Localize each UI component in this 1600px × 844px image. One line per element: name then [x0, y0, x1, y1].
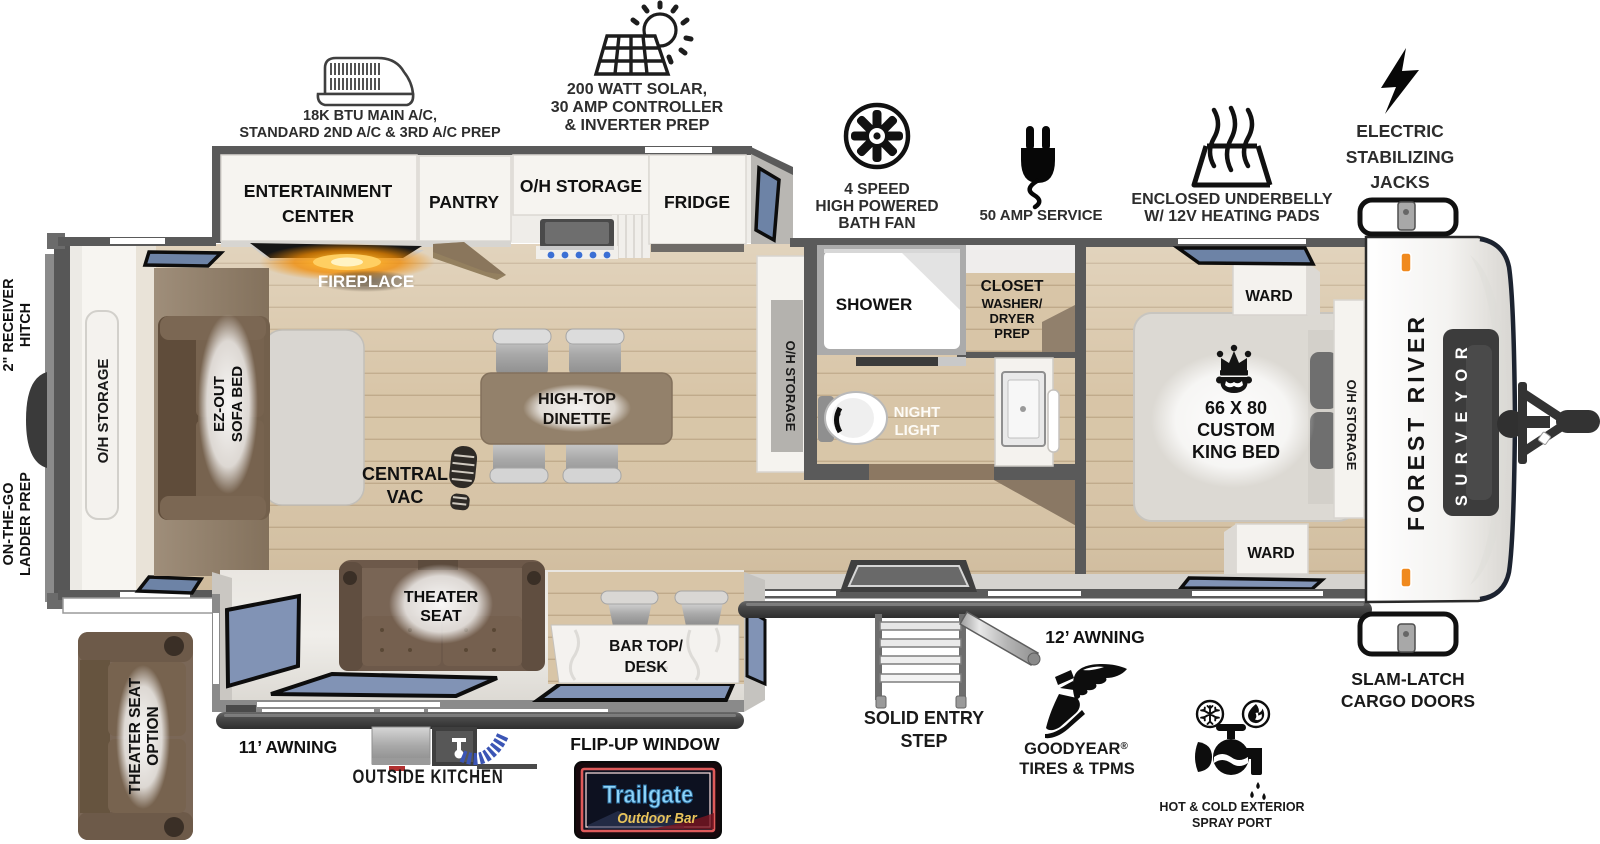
svg-text:WARD: WARD	[1245, 288, 1292, 305]
svg-text:O/H STORAGE: O/H STORAGE	[1344, 380, 1359, 471]
svg-text:DINETTE: DINETTE	[543, 411, 612, 428]
svg-text:12’ AWNING: 12’ AWNING	[1045, 627, 1145, 647]
svg-text:HITCH: HITCH	[18, 303, 34, 347]
svg-text:ENCLOSED UNDERBELLY: ENCLOSED UNDERBELLY	[1131, 191, 1333, 208]
svg-text:DESK: DESK	[624, 659, 668, 676]
svg-text:66 X 80: 66 X 80	[1205, 398, 1267, 418]
svg-text:JACKS: JACKS	[1370, 172, 1429, 192]
svg-text:SURVEYOR: SURVEYOR	[1453, 338, 1471, 506]
svg-text:ELECTRIC: ELECTRIC	[1356, 121, 1444, 141]
svg-text:THEATER: THEATER	[404, 589, 479, 606]
svg-text:SHOWER: SHOWER	[836, 295, 913, 314]
svg-text:4 SPEED: 4 SPEED	[844, 181, 909, 198]
svg-text:11’ AWNING: 11’ AWNING	[239, 737, 338, 757]
svg-text:SOFA BED: SOFA BED	[229, 366, 246, 442]
svg-text:WASHER/: WASHER/	[982, 296, 1043, 311]
svg-text:O/H STORAGE: O/H STORAGE	[95, 359, 112, 464]
svg-text:STABILIZING: STABILIZING	[1346, 147, 1455, 167]
svg-text:50 AMP SERVICE: 50 AMP SERVICE	[979, 207, 1102, 224]
svg-text:O/H STORAGE: O/H STORAGE	[783, 341, 798, 432]
svg-text:ON-THE-GO: ON-THE-GO	[1, 483, 17, 566]
svg-text:Outdoor Bar: Outdoor Bar	[617, 810, 698, 827]
svg-text:CARGO DOORS: CARGO DOORS	[1341, 691, 1475, 711]
svg-text:FRIDGE: FRIDGE	[664, 192, 730, 212]
svg-text:KING BED: KING BED	[1192, 442, 1280, 462]
svg-text:CUSTOM: CUSTOM	[1197, 420, 1275, 440]
svg-text:SOLID ENTRY: SOLID ENTRY	[864, 708, 984, 728]
svg-text:SEAT: SEAT	[420, 608, 462, 625]
svg-text:EZ-OUT: EZ-OUT	[211, 376, 228, 432]
svg-text:LADDER PREP: LADDER PREP	[18, 472, 34, 576]
svg-text:FLIP-UP WINDOW: FLIP-UP WINDOW	[570, 734, 720, 754]
svg-text:FIREPLACE: FIREPLACE	[318, 272, 414, 291]
svg-text:STANDARD 2ND A/C & 3RD A/C PRE: STANDARD 2ND A/C & 3RD A/C PREP	[239, 125, 501, 141]
svg-text:VAC: VAC	[387, 487, 424, 507]
svg-text:SLAM-LATCH: SLAM-LATCH	[1351, 669, 1464, 689]
svg-text:TIRES & TPMS: TIRES & TPMS	[1019, 760, 1135, 778]
svg-text:OPTION: OPTION	[145, 706, 162, 765]
svg-text:BATH FAN: BATH FAN	[838, 215, 915, 232]
svg-text:18K BTU MAIN A/C,: 18K BTU MAIN A/C,	[303, 108, 437, 124]
svg-text:GOODYEAR®: GOODYEAR®	[1024, 740, 1128, 758]
svg-text:HOT & COLD EXTERIOR: HOT & COLD EXTERIOR	[1159, 800, 1304, 814]
svg-text:STEP: STEP	[900, 731, 947, 751]
svg-text:200 WATT SOLAR,: 200 WATT SOLAR,	[567, 81, 707, 98]
svg-text:ENTERTAINMENT: ENTERTAINMENT	[244, 181, 393, 201]
svg-text:BAR TOP/: BAR TOP/	[609, 638, 683, 655]
svg-text:& INVERTER PREP: & INVERTER PREP	[565, 117, 710, 134]
svg-text:LIGHT: LIGHT	[895, 422, 940, 439]
svg-text:SPRAY PORT: SPRAY PORT	[1192, 816, 1272, 830]
svg-text:Trailgate: Trailgate	[603, 781, 693, 809]
svg-text:NIGHT: NIGHT	[894, 404, 941, 421]
svg-text:DRYER: DRYER	[989, 311, 1035, 326]
svg-text:OUTSIDE KITCHEN: OUTSIDE KITCHEN	[353, 765, 504, 787]
svg-text:HIGH-TOP: HIGH-TOP	[538, 391, 616, 408]
svg-text:THEATER SEAT: THEATER SEAT	[127, 677, 144, 794]
svg-text:W/ 12V HEATING PADS: W/ 12V HEATING PADS	[1144, 208, 1320, 225]
svg-text:2" RECEIVER: 2" RECEIVER	[1, 278, 17, 372]
svg-text:PREP: PREP	[994, 326, 1030, 341]
svg-text:CENTRAL: CENTRAL	[362, 464, 448, 484]
svg-text:HIGH POWERED: HIGH POWERED	[815, 198, 938, 215]
svg-text:FOREST RIVER: FOREST RIVER	[1403, 313, 1429, 531]
svg-text:O/H STORAGE: O/H STORAGE	[520, 176, 642, 196]
svg-text:WARD: WARD	[1247, 545, 1294, 562]
svg-text:30 AMP CONTROLLER: 30 AMP CONTROLLER	[551, 99, 724, 116]
svg-text:CENTER: CENTER	[282, 206, 354, 226]
svg-text:CLOSET: CLOSET	[981, 278, 1044, 295]
svg-text:PANTRY: PANTRY	[429, 192, 499, 212]
